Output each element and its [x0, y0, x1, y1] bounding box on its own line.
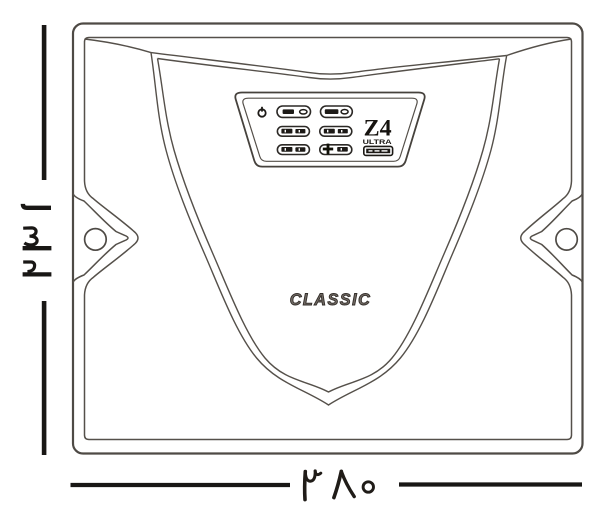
svg-text:ULTRA: ULTRA [363, 139, 393, 146]
svg-text:CLASSIC: CLASSIC [290, 291, 372, 309]
svg-text:Z4: Z4 [364, 116, 392, 142]
